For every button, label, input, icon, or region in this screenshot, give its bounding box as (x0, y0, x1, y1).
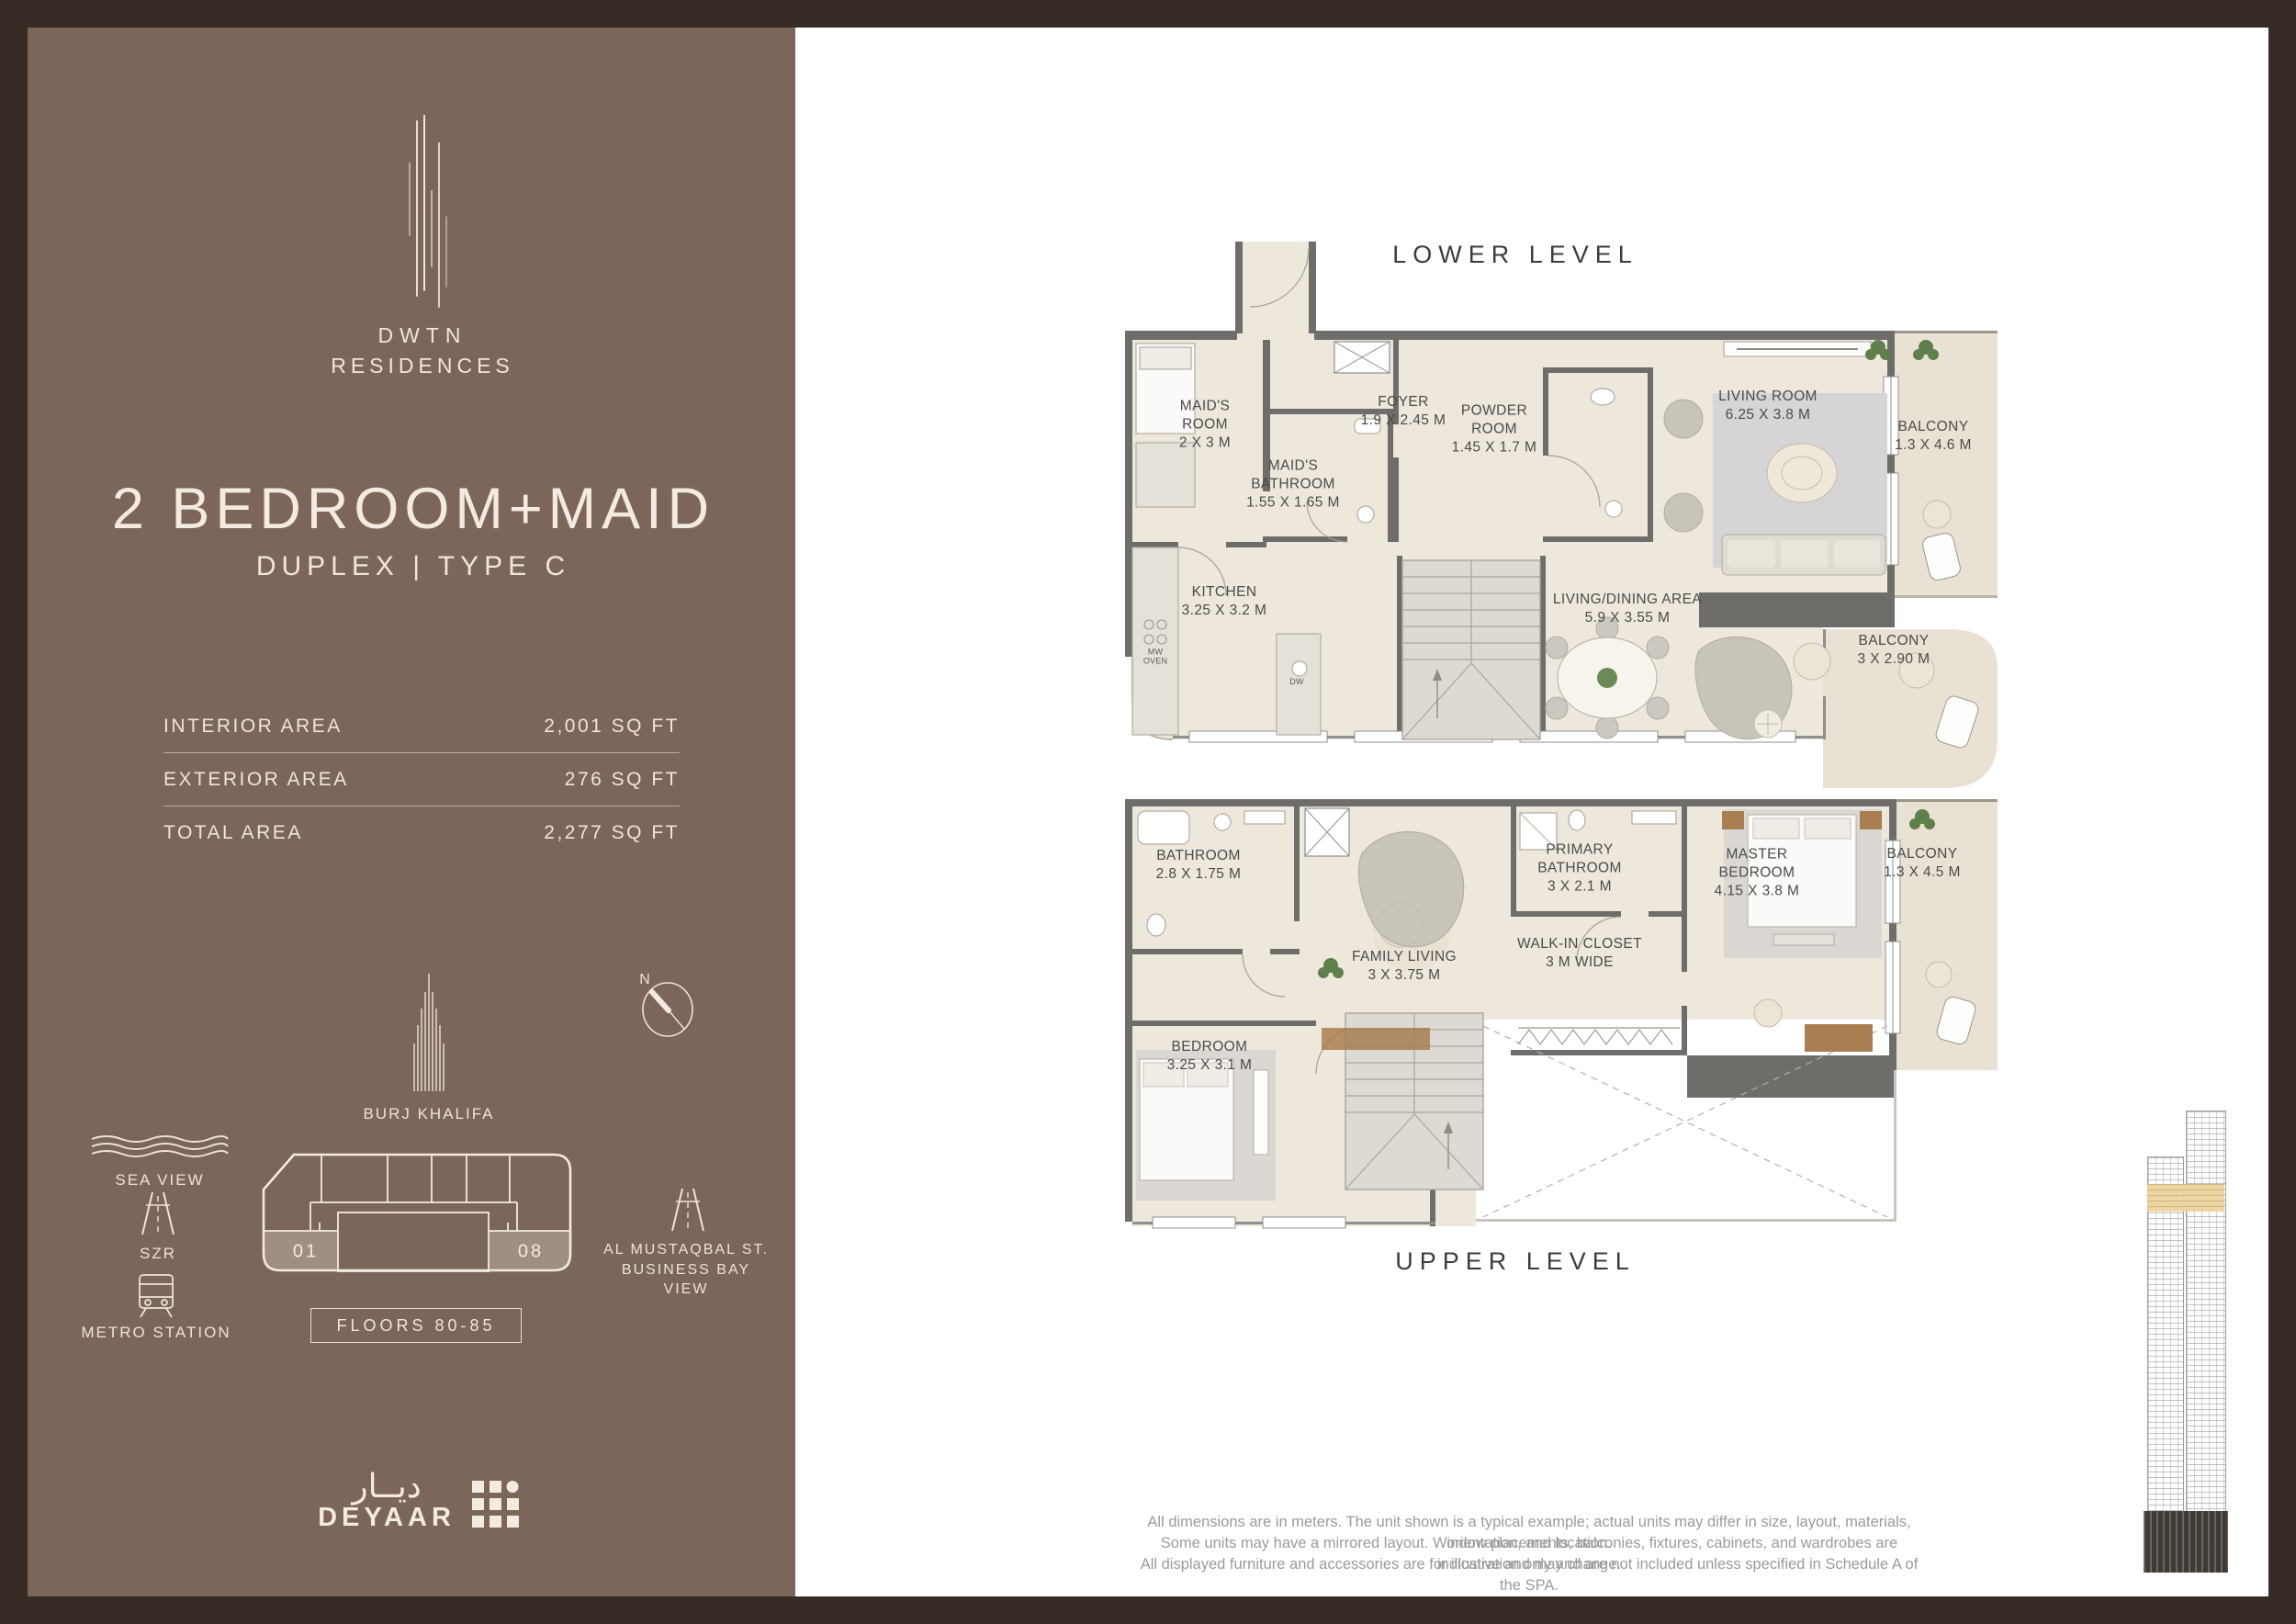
deyaar-latin-wordmark: DEYAAR (310, 1503, 464, 1533)
area-label: TOTAL AREA (163, 822, 303, 844)
room-label-living-room: LIVING ROOM 6.25 X 3.8 M (1718, 388, 1818, 424)
area-table: INTERIOR AREA 2,001 SQ FT EXTERIOR AREA … (163, 700, 680, 859)
floors-highlight-band (2147, 1184, 2224, 1212)
sea-view-label: SEA VIEW (84, 1170, 235, 1191)
street-view-label: AL MUSTAQBAL ST. BUSINESS BAY VIEW (580, 1240, 792, 1300)
area-label: INTERIOR AREA (163, 716, 343, 738)
deyaar-grid-icon (472, 1481, 522, 1530)
unit-subtitle: DUPLEX | TYPE C (37, 551, 790, 582)
room-label-maids-room: MAID'S ROOM 2 X 3 M (1179, 397, 1231, 451)
burj-khalifa-icon (392, 972, 466, 1093)
area-value: 2,001 SQ FT (544, 716, 680, 738)
brand-line2: RESIDENCES (55, 354, 790, 378)
room-label-kitchen: KITCHEN 3.25 X 3.2 M (1182, 583, 1267, 620)
metro-station-icon (130, 1273, 182, 1319)
disclaimer-line-3: All displayed furniture and accessories … (1134, 1554, 1924, 1596)
room-label-balcony-rear: BALCONY 3 X 2.90 M (1858, 632, 1930, 669)
upper-level-title: UPPER LEVEL (1102, 1247, 1929, 1276)
room-label-bedroom: BEDROOM 3.25 X 3.1 M (1167, 1038, 1253, 1075)
street-road-icon (663, 1187, 713, 1233)
keyplan-unit-01: 01 (293, 1242, 319, 1263)
area-value: 2,277 SQ FT (544, 822, 680, 844)
room-label-balcony-side: BALCONY 1.3 X 4.6 M (1895, 418, 1972, 455)
room-label-balcony-upper: BALCONY 1.3 X 4.5 M (1884, 845, 1961, 882)
dwtn-logo-icon (400, 107, 459, 316)
szr-label: SZR (112, 1244, 204, 1265)
metro-station-label: METRO STATION (55, 1323, 257, 1344)
floors-badge: FLOORS 80-85 (310, 1308, 522, 1343)
brochure-page: { "sidebar": { "brand_line1": "DWTN", "b… (0, 0, 2296, 1624)
sea-view-icon (88, 1133, 231, 1159)
room-label-family-living: FAMILY LIVING 3 X 3.75 M (1352, 948, 1457, 985)
room-label-primary-bath: PRIMARY BATHROOM 3 X 2.1 M (1537, 840, 1622, 895)
compass-icon (639, 981, 696, 1038)
building-elevation (2142, 1102, 2234, 1575)
szr-road-icon (133, 1190, 183, 1236)
tower-right-wing (2186, 1111, 2226, 1513)
room-label-master-bedroom: MASTER BEDROOM 4.15 X 3.8 M (1715, 845, 1800, 899)
area-value: 276 SQ FT (565, 769, 680, 791)
appliance-label-mw-oven: MW OVEN (1143, 648, 1167, 667)
keyplan-unit-08: 08 (518, 1242, 544, 1263)
brand-line1: DWTN (55, 323, 790, 348)
room-label-bathroom: BATHROOM 2.8 X 1.75 M (1156, 847, 1242, 884)
appliance-label-dw: DW (1289, 677, 1303, 686)
deyaar-arabic-wordmark: ديــار (310, 1470, 464, 1503)
room-label-powder-room: POWDER ROOM 1.45 X 1.7 M (1452, 401, 1537, 456)
tower-base (2144, 1511, 2228, 1573)
room-label-walkin-closet: WALK-IN CLOSET 3 M WIDE (1517, 935, 1642, 972)
room-label-maids-bath: MAID'S BATHROOM 1.55 X 1.65 M (1246, 457, 1340, 511)
room-label-foyer: FOYER 1.9 X 2.45 M (1361, 393, 1446, 430)
area-label: EXTERIOR AREA (163, 769, 349, 791)
room-label-living-dining: LIVING/DINING AREA 5.9 X 3.55 M (1553, 591, 1702, 627)
table-row: EXTERIOR AREA 276 SQ FT (163, 753, 680, 806)
lower-floorplan (1125, 239, 2002, 795)
landmark-label: BURJ KHALIFA (319, 1104, 539, 1125)
unit-title: 2 BEDROOM+MAID (37, 476, 790, 542)
table-row: INTERIOR AREA 2,001 SQ FT (163, 700, 680, 753)
table-row: TOTAL AREA 2,277 SQ FT (163, 806, 680, 859)
